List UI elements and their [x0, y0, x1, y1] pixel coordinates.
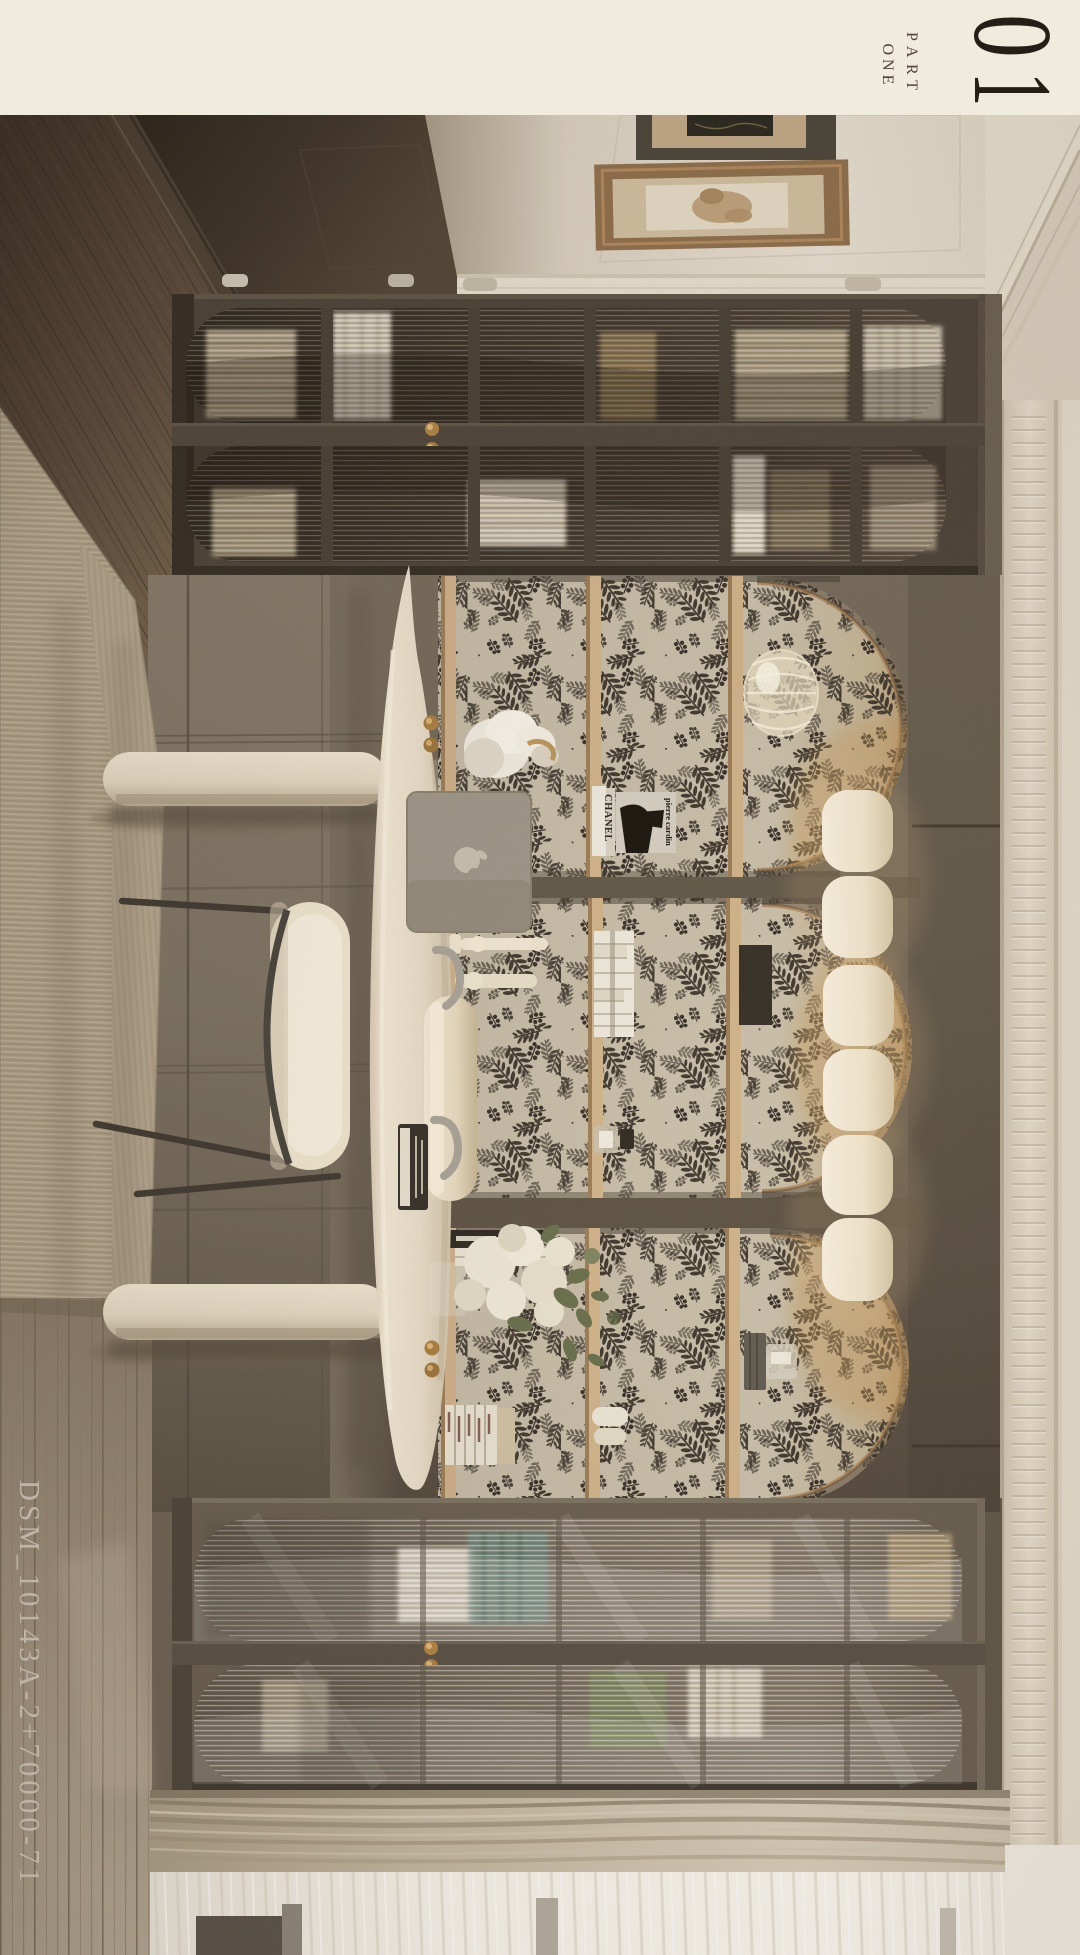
svg-text:DSM_10143A-2+70000-71: DSM_10143A-2+70000-71	[13, 1480, 45, 1886]
svg-text:ONE: ONE	[879, 44, 896, 89]
svg-text:PART: PART	[903, 32, 920, 96]
svg-text:0: 0	[950, 14, 1074, 57]
svg-text:1: 1	[950, 72, 1074, 107]
